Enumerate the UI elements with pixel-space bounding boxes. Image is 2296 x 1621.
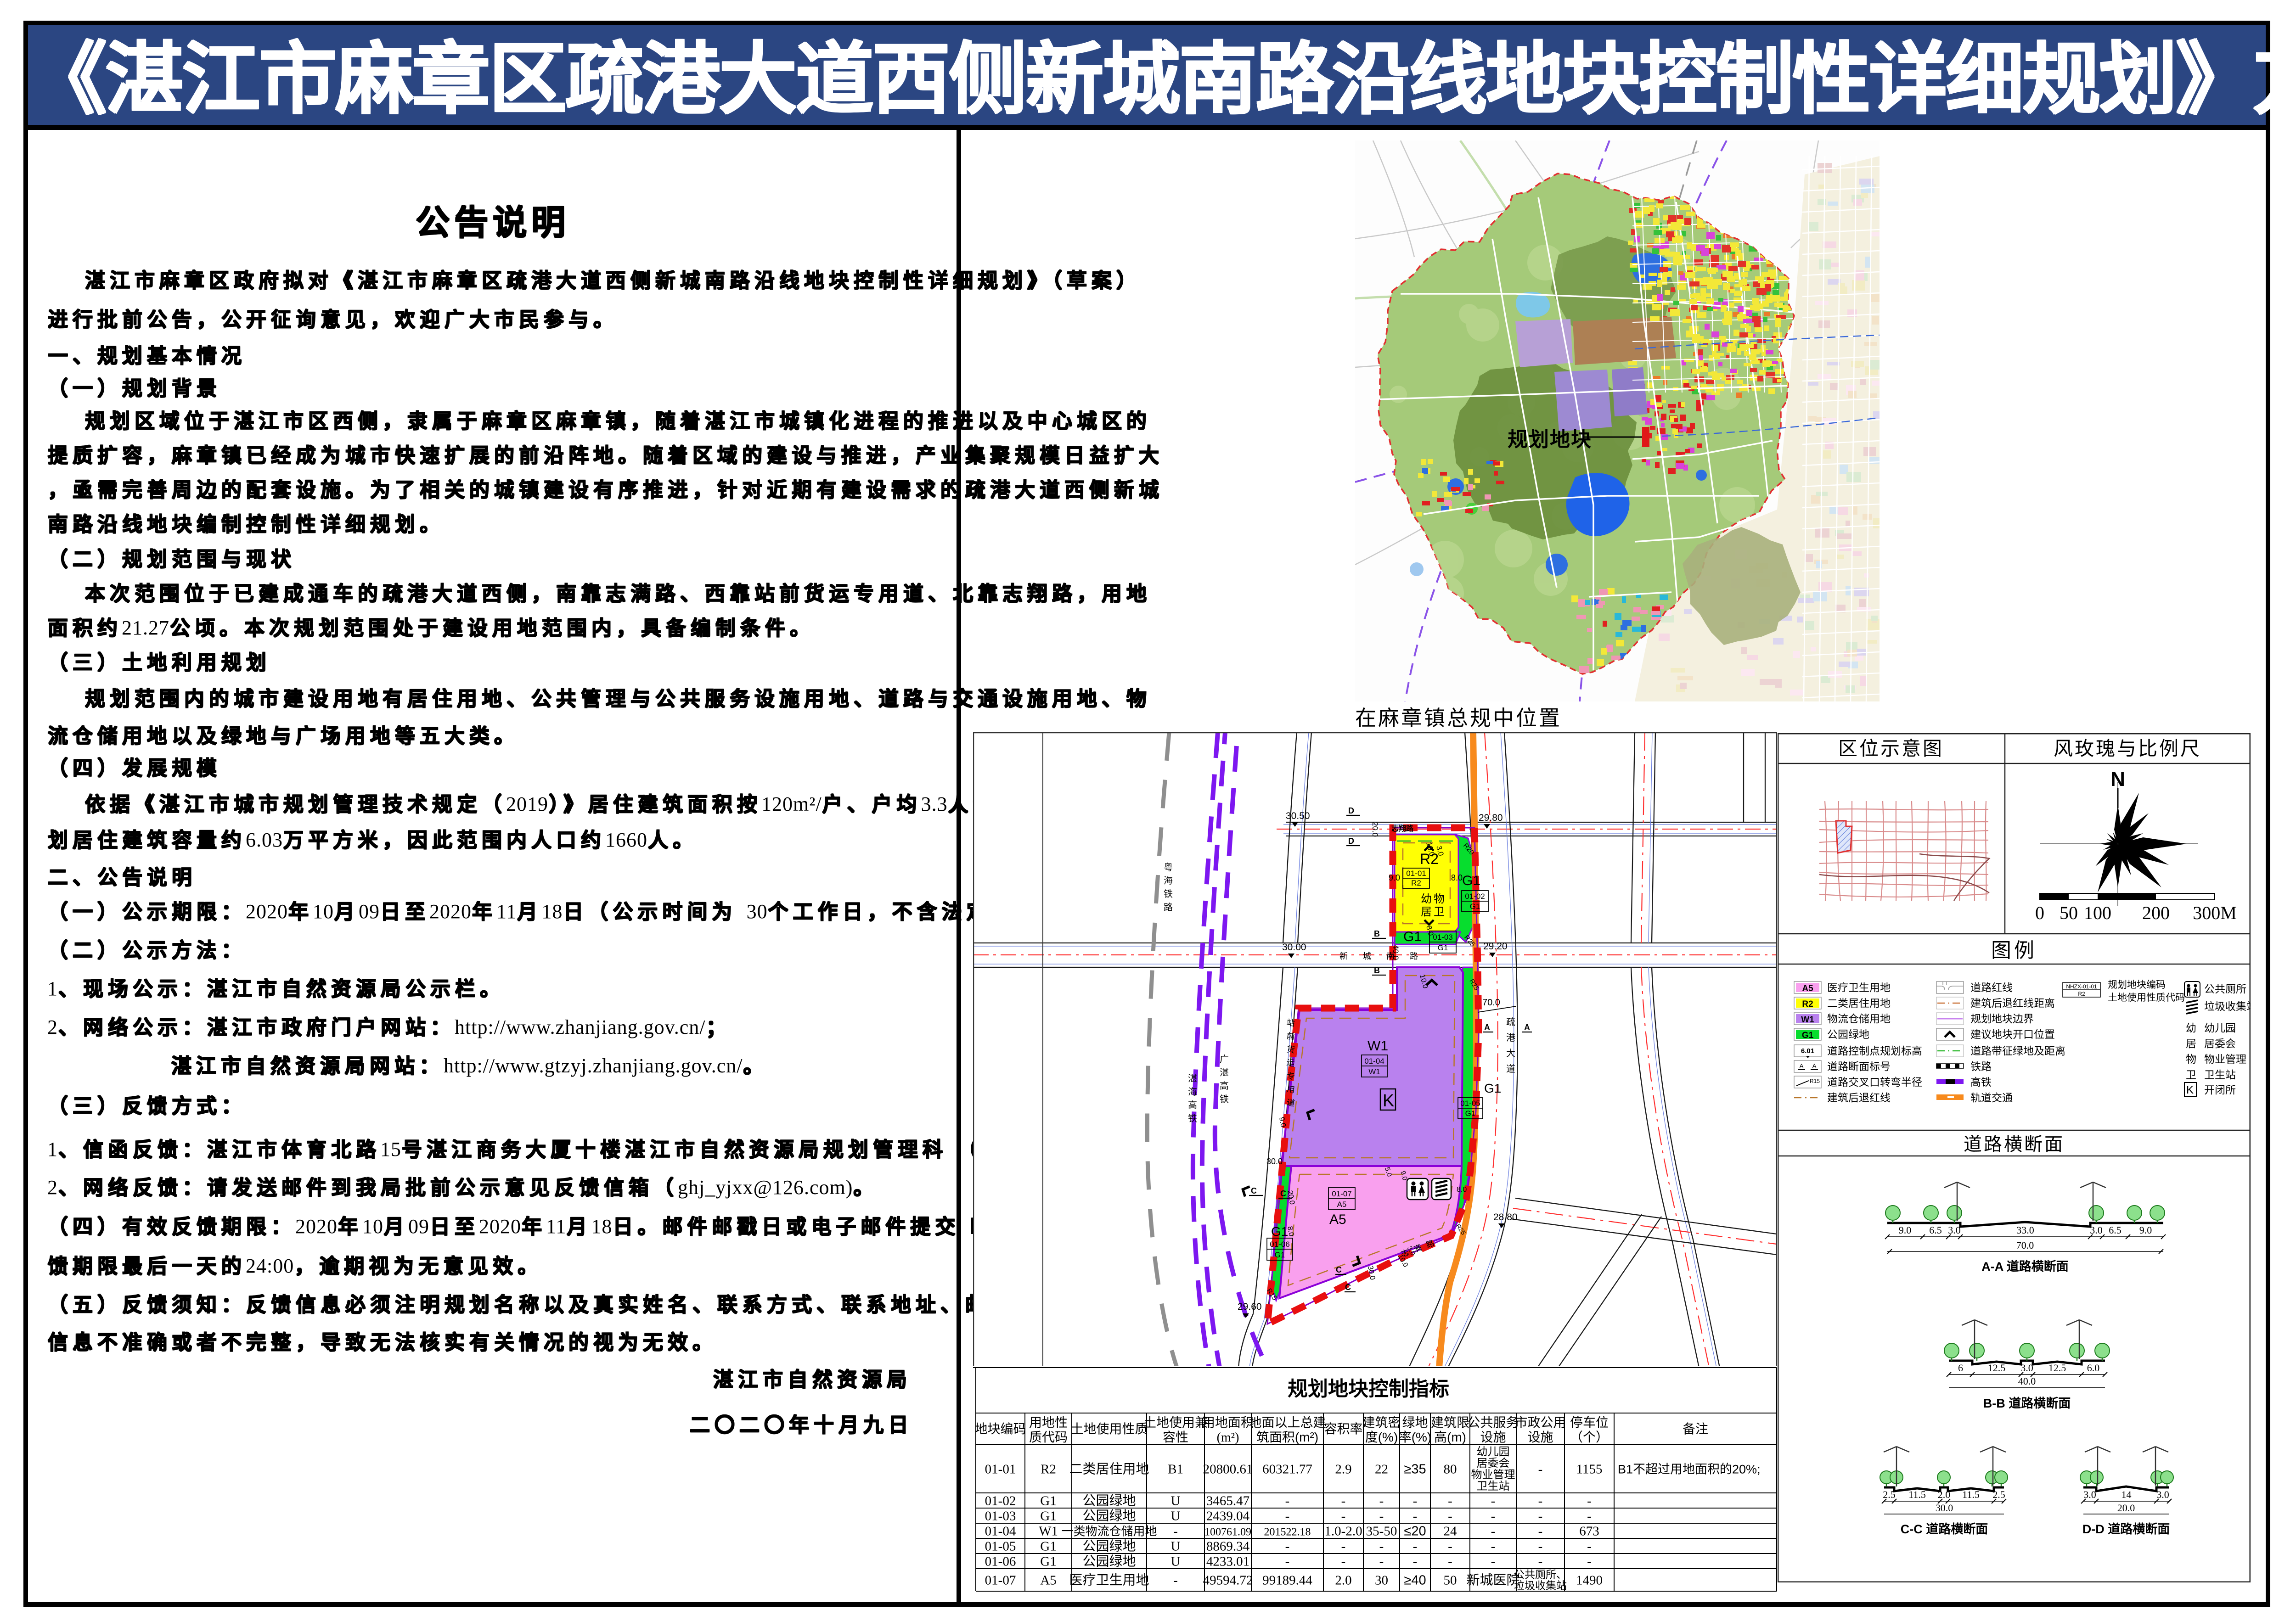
svg-text:99189.44: 99189.44 <box>1262 1573 1312 1588</box>
svg-text:公共厕所: 公共厕所 <box>2204 983 2246 995</box>
svg-text:率(%): 率(%) <box>1399 1430 1432 1444</box>
svg-text:容性: 容性 <box>1163 1430 1188 1444</box>
svg-text:物业管理: 物业管理 <box>1471 1469 1515 1481</box>
svg-text:物: 物 <box>1434 893 1445 905</box>
svg-text:3.0: 3.0 <box>2020 1362 2033 1374</box>
svg-text:29.80: 29.80 <box>1479 813 1503 823</box>
svg-text:卫生站: 卫生站 <box>1477 1480 1510 1492</box>
svg-text:01-04: 01-04 <box>1364 1057 1384 1066</box>
svg-text:B1: B1 <box>1168 1462 1183 1477</box>
svg-text:01-06: 01-06 <box>1270 1240 1289 1249</box>
svg-text:高: 高 <box>1188 1100 1197 1111</box>
svg-text:建筑后退红线: 建筑后退红线 <box>1827 1092 1891 1104</box>
svg-text:-: - <box>1173 1524 1178 1539</box>
svg-text:新城医院: 新城医院 <box>1466 1573 1519 1588</box>
svg-text:设施: 设施 <box>1480 1430 1506 1444</box>
svg-text:NHZX-01-01: NHZX-01-01 <box>2066 983 2097 990</box>
svg-text:土地使用兼: 土地使用兼 <box>1143 1415 1208 1430</box>
svg-text:2439.04: 2439.04 <box>1206 1509 1250 1524</box>
svg-text:风玫瑰与比例尺: 风玫瑰与比例尺 <box>2054 738 2201 759</box>
svg-text:A5: A5 <box>1040 1573 1056 1588</box>
svg-text:铁路: 铁路 <box>1970 1060 1992 1072</box>
svg-text:-: - <box>1341 1509 1346 1524</box>
svg-text:开闭所: 开闭所 <box>2204 1084 2236 1096</box>
svg-text:道路带征绿地及距离: 道路带征绿地及距离 <box>1970 1045 2065 1057</box>
svg-text:A5: A5 <box>1329 1212 1346 1227</box>
svg-text:-: - <box>1379 1554 1384 1569</box>
svg-text:B: B <box>1374 966 1380 975</box>
svg-text:100761.09: 100761.09 <box>1204 1526 1251 1538</box>
svg-text:垃圾收集站: 垃圾收集站 <box>1514 1580 1567 1592</box>
svg-text:30.0: 30.0 <box>1936 1502 1953 1514</box>
svg-text:市政公用: 市政公用 <box>1514 1415 1566 1430</box>
svg-text:医疗卫生用地: 医疗卫生用地 <box>1069 1573 1149 1588</box>
svg-text:01-06: 01-06 <box>985 1554 1016 1569</box>
svg-text:3465.47: 3465.47 <box>1206 1494 1249 1509</box>
svg-text:20.0: 20.0 <box>1371 822 1379 837</box>
svg-text:公园绿地: 公园绿地 <box>1082 1539 1136 1554</box>
svg-text:道: 道 <box>1286 1098 1295 1108</box>
svg-text:B-B 道路横断面: B-B 道路横断面 <box>1983 1396 2071 1410</box>
svg-text:3.0: 3.0 <box>2090 1224 2103 1236</box>
svg-text:49594.72: 49594.72 <box>1203 1573 1253 1588</box>
svg-text:居委会: 居委会 <box>2204 1038 2236 1049</box>
svg-text:20800.61: 20800.61 <box>1203 1462 1253 1477</box>
svg-text:C: C <box>1280 1189 1286 1198</box>
svg-text:29.60: 29.60 <box>1238 1301 1262 1312</box>
svg-text:-: - <box>1341 1494 1346 1509</box>
svg-text:1.0-2.0: 1.0-2.0 <box>1324 1524 1362 1539</box>
svg-text:道路横断面: 道路横断面 <box>1964 1134 2065 1155</box>
svg-text:-: - <box>1491 1509 1496 1524</box>
svg-text:G1: G1 <box>1040 1494 1056 1509</box>
svg-text:1490: 1490 <box>1576 1573 1603 1588</box>
svg-text:01-03: 01-03 <box>985 1509 1016 1524</box>
svg-text:G1: G1 <box>1040 1554 1056 1569</box>
svg-text:U: U <box>1171 1554 1181 1569</box>
svg-text:容积率: 容积率 <box>1324 1422 1362 1436</box>
svg-text:6.01: 6.01 <box>1801 1047 1814 1055</box>
svg-text:20.0: 20.0 <box>2117 1502 2135 1514</box>
svg-text:用地面积: 用地面积 <box>1202 1415 1254 1430</box>
svg-text:道: 道 <box>1506 1064 1515 1074</box>
svg-text:40.0: 40.0 <box>1391 945 1400 960</box>
svg-text:轨道交通: 轨道交通 <box>1970 1092 2013 1104</box>
svg-text:-: - <box>1538 1494 1543 1509</box>
svg-text:医疗卫生用地: 医疗卫生用地 <box>1827 982 1891 993</box>
svg-text:G1: G1 <box>1403 929 1422 944</box>
svg-text:海: 海 <box>1164 875 1173 886</box>
svg-text:-: - <box>1538 1462 1543 1477</box>
svg-text:201522.18: 201522.18 <box>1264 1526 1311 1538</box>
svg-text:B: B <box>1374 929 1380 938</box>
svg-text:-: - <box>1448 1554 1452 1569</box>
svg-text:29.20: 29.20 <box>1483 941 1508 952</box>
svg-text:4233.01: 4233.01 <box>1206 1554 1249 1569</box>
svg-text:R15: R15 <box>1810 1078 1820 1084</box>
svg-text:道路交叉口转弯半径: 道路交叉口转弯半径 <box>1827 1076 1922 1088</box>
svg-text:300M: 300M <box>2193 903 2237 923</box>
svg-text:道路断面标号: 道路断面标号 <box>1827 1060 1891 1072</box>
svg-text:01-03: 01-03 <box>1433 933 1452 942</box>
svg-text:-: - <box>1448 1494 1452 1509</box>
svg-text:疏: 疏 <box>1506 1017 1515 1027</box>
svg-text:建筑密: 建筑密 <box>1362 1415 1401 1430</box>
svg-text:运: 运 <box>1286 1058 1295 1068</box>
svg-text:G1: G1 <box>1438 943 1448 952</box>
svg-text:-: - <box>1491 1554 1496 1569</box>
svg-text:30.0: 30.0 <box>1266 1157 1283 1166</box>
svg-text:30.00: 30.00 <box>1282 942 1306 953</box>
svg-text:筑面积(m²): 筑面积(m²) <box>1256 1430 1318 1444</box>
svg-text:D-D 道路横断面: D-D 道路横断面 <box>2082 1522 2170 1536</box>
svg-text:6.0: 6.0 <box>2087 1362 2100 1374</box>
svg-text:9.0: 9.0 <box>1389 873 1400 882</box>
svg-text:建筑后退红线距离: 建筑后退红线距离 <box>1970 997 2055 1009</box>
svg-text:用地性: 用地性 <box>1029 1415 1068 1430</box>
svg-text:土地使用性质: 土地使用性质 <box>1070 1422 1148 1436</box>
svg-text:A: A <box>1484 1023 1490 1032</box>
svg-text:≤20: ≤20 <box>1404 1524 1426 1539</box>
svg-text:-: - <box>1587 1554 1592 1569</box>
svg-text:35-50: 35-50 <box>1366 1524 1397 1539</box>
svg-text:G1: G1 <box>1462 873 1480 888</box>
svg-text:-: - <box>1587 1494 1592 1509</box>
svg-text:二类居住用地: 二类居住用地 <box>1827 997 1891 1009</box>
svg-text:-: - <box>1341 1539 1346 1554</box>
svg-text:01-02: 01-02 <box>985 1494 1016 1509</box>
svg-text:K: K <box>1383 1091 1394 1111</box>
svg-text:01-05: 01-05 <box>1460 1099 1480 1108</box>
svg-text:-: - <box>1413 1494 1418 1509</box>
svg-text:粤: 粤 <box>1164 862 1173 873</box>
svg-text:货: 货 <box>1286 1044 1295 1054</box>
svg-text:80: 80 <box>1444 1462 1457 1477</box>
svg-text:-: - <box>1491 1524 1496 1539</box>
svg-text:-: - <box>1285 1539 1290 1554</box>
svg-text:C: C <box>1345 1283 1351 1292</box>
svg-text:设施: 设施 <box>1527 1430 1553 1444</box>
svg-text:停车位: 停车位 <box>1570 1415 1609 1430</box>
svg-text:A: A <box>1524 1023 1530 1032</box>
svg-text:专: 专 <box>1286 1071 1295 1081</box>
svg-text:A: A <box>1799 1062 1804 1070</box>
svg-text:公共厕所、: 公共厕所、 <box>1514 1569 1567 1581</box>
svg-text:01-04: 01-04 <box>985 1524 1016 1539</box>
svg-text:居: 居 <box>2186 1038 2196 1049</box>
svg-text:物业管理: 物业管理 <box>2204 1053 2246 1065</box>
svg-text:60321.77: 60321.77 <box>1262 1462 1312 1477</box>
svg-text:G1: G1 <box>1465 1109 1476 1118</box>
svg-text:24: 24 <box>1444 1524 1458 1539</box>
svg-text:-: - <box>1285 1494 1290 1509</box>
svg-text:-: - <box>1587 1509 1592 1524</box>
svg-text:2.5: 2.5 <box>1883 1489 1896 1500</box>
svg-text:8.0: 8.0 <box>1457 1186 1467 1194</box>
svg-text:A-A 道路横断面: A-A 道路横断面 <box>1981 1259 2069 1273</box>
svg-text:公园绿地: 公园绿地 <box>1082 1493 1136 1509</box>
svg-text:673: 673 <box>1579 1524 1599 1539</box>
svg-text:垃圾收集站: 垃圾收集站 <box>2204 1000 2251 1012</box>
svg-text:公园绿地: 公园绿地 <box>1827 1028 1869 1040</box>
svg-text:-: - <box>1379 1539 1384 1554</box>
svg-text:01-02: 01-02 <box>1465 892 1485 901</box>
svg-text:(m²): (m²) <box>1217 1430 1239 1445</box>
svg-text:-: - <box>1587 1539 1592 1554</box>
svg-text:-: - <box>1538 1554 1543 1569</box>
svg-text:9.0: 9.0 <box>2139 1224 2152 1236</box>
svg-text:G1: G1 <box>1040 1509 1056 1524</box>
svg-text:14: 14 <box>2122 1489 2132 1500</box>
svg-text:8.0: 8.0 <box>1451 873 1463 882</box>
svg-text:道路红线: 道路红线 <box>1970 982 2013 993</box>
svg-text:01-01: 01-01 <box>985 1462 1016 1477</box>
svg-text:R2: R2 <box>1041 1462 1056 1477</box>
svg-text:-: - <box>1173 1573 1178 1588</box>
svg-text:1155: 1155 <box>1576 1462 1603 1477</box>
svg-text:9.0: 9.0 <box>1899 1224 1912 1236</box>
svg-text:-: - <box>1448 1509 1452 1524</box>
svg-text:公共服务: 公共服务 <box>1467 1415 1519 1430</box>
svg-text:200: 200 <box>2142 903 2170 923</box>
svg-text:G1: G1 <box>1271 1224 1288 1239</box>
svg-text:28.80: 28.80 <box>1493 1212 1518 1223</box>
svg-text:U: U <box>1171 1494 1181 1509</box>
svg-text:11.5: 11.5 <box>1908 1489 1926 1500</box>
svg-text:30.50: 30.50 <box>1286 811 1310 821</box>
svg-text:建筑限: 建筑限 <box>1431 1415 1469 1430</box>
svg-text:W1: W1 <box>1368 1067 1380 1076</box>
svg-text:G1: G1 <box>1484 1081 1501 1095</box>
svg-text:居委会: 居委会 <box>1477 1457 1510 1470</box>
svg-text:土地使用性质代码: 土地使用性质代码 <box>2108 993 2185 1003</box>
svg-text:50: 50 <box>2060 903 2078 923</box>
svg-text:前: 前 <box>1286 1031 1295 1041</box>
svg-text:12.5: 12.5 <box>1988 1362 2006 1374</box>
svg-text:图例: 图例 <box>1991 939 2037 962</box>
svg-text:C: C <box>1336 1265 1342 1274</box>
svg-text:22: 22 <box>1375 1462 1388 1477</box>
svg-text:度(%): 度(%) <box>1365 1430 1398 1444</box>
svg-text:幼儿园: 幼儿园 <box>2204 1022 2236 1034</box>
svg-text:2.9: 2.9 <box>1335 1462 1351 1477</box>
svg-text:-: - <box>1341 1554 1346 1569</box>
svg-text:-: - <box>1413 1509 1418 1524</box>
svg-text:幼: 幼 <box>2186 1022 2196 1034</box>
svg-text:备注: 备注 <box>1683 1422 1708 1436</box>
svg-text:U: U <box>1171 1539 1181 1554</box>
svg-text:物: 物 <box>2186 1053 2196 1065</box>
svg-text:绿地: 绿地 <box>1402 1415 1428 1430</box>
svg-text:D: D <box>1348 836 1354 846</box>
svg-text:卫: 卫 <box>1434 906 1445 918</box>
svg-text:-: - <box>1285 1509 1290 1524</box>
svg-text:2.0: 2.0 <box>1335 1573 1351 1588</box>
svg-text:广: 广 <box>1220 1054 1229 1065</box>
svg-text:规划地块编码: 规划地块编码 <box>2108 980 2166 990</box>
svg-text:01-07: 01-07 <box>985 1573 1016 1588</box>
svg-text:地块编码: 地块编码 <box>974 1422 1026 1436</box>
svg-text:幼: 幼 <box>1421 893 1432 905</box>
svg-text:新 城 南 路: 新 城 南 路 <box>1339 952 1424 961</box>
svg-text:用: 用 <box>1286 1084 1295 1094</box>
svg-text:G1: G1 <box>1470 902 1480 911</box>
svg-text:高: 高 <box>1220 1081 1229 1091</box>
svg-text:幼儿园: 幼儿园 <box>1477 1446 1510 1458</box>
svg-text:道路控制点规划标高: 道路控制点规划标高 <box>1827 1045 1922 1057</box>
svg-text:6: 6 <box>1958 1362 1963 1374</box>
svg-text:一类物流仓储用地: 一类物流仓储用地 <box>1061 1525 1157 1538</box>
svg-text:区位示意图: 区位示意图 <box>1838 738 1944 759</box>
svg-text:规划地块控制指标: 规划地块控制指标 <box>1288 1378 1449 1400</box>
svg-text:大: 大 <box>1506 1048 1515 1059</box>
svg-text:11.5: 11.5 <box>1962 1489 1980 1500</box>
svg-text:海: 海 <box>1188 1087 1197 1097</box>
svg-text:G1: G1 <box>1275 1251 1285 1259</box>
svg-text:规划地块: 规划地块 <box>1508 428 1592 451</box>
svg-text:01-07: 01-07 <box>1332 1189 1351 1198</box>
svg-text:70.0: 70.0 <box>1482 998 1500 1008</box>
svg-text:铁: 铁 <box>1188 1113 1197 1124</box>
svg-text:居: 居 <box>1421 906 1432 918</box>
svg-text:A5: A5 <box>1802 984 1813 993</box>
svg-text:≥35: ≥35 <box>1404 1462 1426 1477</box>
svg-text:-: - <box>1538 1539 1543 1554</box>
svg-text:湛: 湛 <box>1188 1073 1197 1084</box>
svg-text:质代码: 质代码 <box>1029 1430 1068 1444</box>
svg-text:物流仓储用地: 物流仓储用地 <box>1827 1013 1891 1025</box>
svg-text:2.5: 2.5 <box>1992 1489 2005 1500</box>
svg-text:建议地块开口位置: 建议地块开口位置 <box>1970 1028 2055 1040</box>
svg-text:志翔路: 志翔路 <box>1391 824 1414 833</box>
svg-text:C: C <box>1251 1186 1257 1195</box>
svg-text:50: 50 <box>1444 1573 1457 1588</box>
svg-text:公园绿地: 公园绿地 <box>1082 1509 1136 1524</box>
svg-text:-: - <box>1379 1509 1384 1524</box>
svg-text:公园绿地: 公园绿地 <box>1082 1554 1136 1569</box>
svg-text:40.0: 40.0 <box>2018 1375 2036 1387</box>
svg-text:R2: R2 <box>1411 879 1421 887</box>
svg-text:二类居住用地: 二类居住用地 <box>1069 1462 1149 1477</box>
svg-text:70.0: 70.0 <box>2016 1240 2034 1251</box>
svg-text:R2: R2 <box>2078 991 2085 997</box>
svg-text:-: - <box>1379 1494 1384 1509</box>
svg-text:30: 30 <box>1375 1573 1388 1588</box>
svg-text:路: 路 <box>1164 902 1173 913</box>
svg-text:6.5: 6.5 <box>2109 1224 2122 1236</box>
svg-text:A: A <box>1812 1062 1817 1070</box>
svg-text:地面以上总建: 地面以上总建 <box>1249 1415 1326 1430</box>
svg-text:卫: 卫 <box>2186 1069 2196 1081</box>
svg-text:A5: A5 <box>1337 1200 1347 1209</box>
svg-text:站: 站 <box>1286 1018 1295 1028</box>
svg-text:高铁: 高铁 <box>1970 1076 1992 1088</box>
svg-text:铁: 铁 <box>1220 1094 1229 1105</box>
svg-text:-: - <box>1448 1539 1452 1554</box>
svg-text:33.0: 33.0 <box>2016 1224 2034 1236</box>
svg-text:G1: G1 <box>1802 1031 1814 1040</box>
svg-text:-: - <box>1538 1509 1543 1524</box>
svg-text:高(m): 高(m) <box>1434 1430 1466 1444</box>
svg-text:2.0: 2.0 <box>1938 1489 1951 1500</box>
svg-text:（个）: （个） <box>1570 1430 1609 1444</box>
svg-text:-: - <box>1285 1554 1290 1569</box>
svg-text:-: - <box>1538 1524 1543 1539</box>
svg-text:R2: R2 <box>1420 851 1439 867</box>
svg-text:C-C 道路横断面: C-C 道路横断面 <box>1901 1522 1988 1536</box>
svg-text:港: 港 <box>1506 1032 1515 1043</box>
svg-text:B1不超过用地面积的20%;: B1不超过用地面积的20%; <box>1618 1463 1761 1476</box>
svg-text:U: U <box>1171 1509 1181 1524</box>
svg-text:≥40: ≥40 <box>1404 1573 1426 1588</box>
svg-text:卫生站: 卫生站 <box>2204 1069 2236 1081</box>
svg-text:3.0: 3.0 <box>2156 1489 2169 1500</box>
svg-text:-: - <box>1491 1539 1496 1554</box>
svg-text:3.0: 3.0 <box>1948 1224 1961 1236</box>
svg-text:G1: G1 <box>1040 1539 1056 1554</box>
svg-text:3.0: 3.0 <box>2083 1489 2096 1500</box>
svg-text:6.5: 6.5 <box>1929 1224 1942 1236</box>
svg-text:R2: R2 <box>1802 999 1813 1009</box>
svg-text:0: 0 <box>2035 903 2044 923</box>
svg-text:8869.34: 8869.34 <box>1206 1539 1250 1554</box>
svg-text:铁: 铁 <box>1164 889 1173 899</box>
svg-text:N: N <box>2110 768 2125 791</box>
svg-text:湛: 湛 <box>1220 1067 1229 1078</box>
svg-text:D: D <box>1348 806 1354 815</box>
svg-text:W1: W1 <box>1039 1524 1058 1539</box>
svg-text:-: - <box>1413 1554 1418 1569</box>
svg-text:-: - <box>1491 1494 1496 1509</box>
svg-text:100: 100 <box>2084 903 2111 923</box>
svg-text:01-05: 01-05 <box>985 1539 1016 1554</box>
svg-text:-: - <box>1413 1539 1418 1554</box>
svg-text:K: K <box>2186 1084 2194 1096</box>
svg-text:W1: W1 <box>1801 1015 1814 1025</box>
svg-text:W1: W1 <box>1367 1038 1388 1054</box>
svg-text:01-01: 01-01 <box>1406 869 1426 878</box>
svg-text:规划地块边界: 规划地块边界 <box>1970 1013 2034 1025</box>
svg-text:12.5: 12.5 <box>2048 1362 2066 1374</box>
